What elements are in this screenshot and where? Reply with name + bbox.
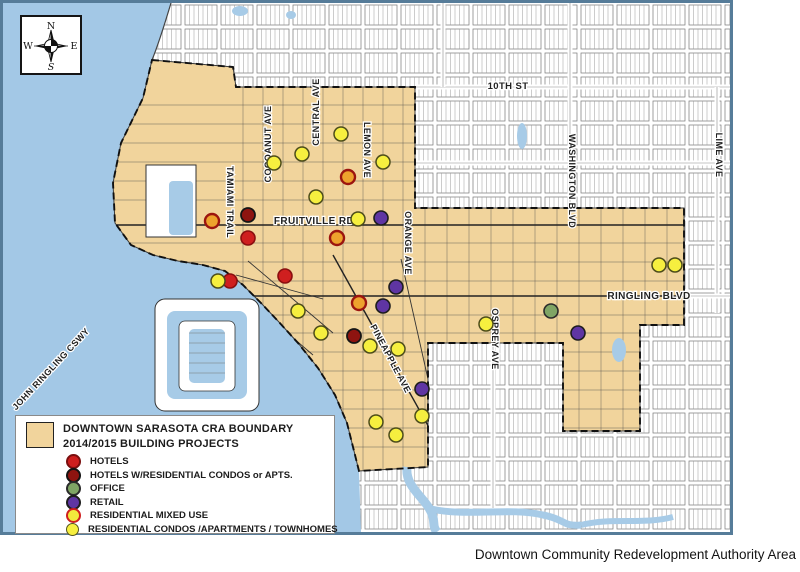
project-marker-hotels xyxy=(278,269,292,283)
project-marker-retail xyxy=(571,326,585,340)
project-marker-residential_condos xyxy=(334,127,348,141)
street-label: 10TH ST xyxy=(488,81,529,92)
project-marker-residential_condos xyxy=(309,190,323,204)
street-label: LEMON AVE xyxy=(362,122,372,178)
sarasota-cra-map: COCOANUT AVECENTRAL AVELEMON AVETAMIAMI … xyxy=(0,0,733,535)
legend-item-retail: RETAIL xyxy=(66,496,334,510)
compass-hub-quarter-1 xyxy=(51,40,58,47)
legend-title-line1: DOWNTOWN SARASOTA CRA BOUNDARY xyxy=(63,422,293,437)
pond xyxy=(232,6,248,16)
legend-item-label: HOTELS W/RESIDENTIAL CONDOS or APTS. xyxy=(90,470,293,481)
project-marker-residential_mixed_use xyxy=(341,170,355,184)
project-marker-residential_condos xyxy=(291,304,305,318)
marina-docks xyxy=(155,299,259,411)
project-marker-residential_condos xyxy=(314,326,328,340)
project-marker-residential_condos xyxy=(369,415,383,429)
street-label: RINGLING BLVD xyxy=(607,291,690,302)
project-marker-residential_condos xyxy=(363,339,377,353)
project-marker-residential_mixed_use xyxy=(352,296,366,310)
project-marker-residential_condos xyxy=(267,156,281,170)
project-marker-residential_condos xyxy=(351,212,365,226)
legend-item-label: RESIDENTIAL CONDOS /APARTMENTS / TOWNHOM… xyxy=(88,524,338,535)
project-marker-hotels xyxy=(241,231,255,245)
street-label: COCOANUT AVE xyxy=(263,106,273,183)
compass-east-label: E xyxy=(71,41,78,52)
project-marker-office xyxy=(544,304,558,318)
legend-titles: DOWNTOWN SARASOTA CRA BOUNDARY 2014/2015… xyxy=(63,422,293,451)
legend-title-line2: 2014/2015 BUILDING PROJECTS xyxy=(63,437,293,452)
map-caption: Downtown Community Redevelopment Authori… xyxy=(475,547,796,562)
project-marker-residential_condos xyxy=(211,274,225,288)
residential-mixed-use-dot-icon xyxy=(66,508,81,523)
project-marker-retail xyxy=(374,211,388,225)
project-marker-residential_condos xyxy=(652,258,666,272)
street-label: FRUITVILLE RD xyxy=(274,216,354,227)
street-label: WASHINGTON BLVD xyxy=(567,134,577,228)
legend-items: HOTELS HOTELS W/RESIDENTIAL CONDOS or AP… xyxy=(16,455,334,536)
pond xyxy=(286,11,296,19)
residential-condos-dot-icon xyxy=(66,523,79,536)
project-marker-residential_condos xyxy=(391,342,405,356)
project-marker-residential_condos xyxy=(376,155,390,169)
street-label: LIME AVE xyxy=(714,133,724,178)
legend-item-label: RETAIL xyxy=(90,497,124,508)
legend-item-hotels: HOTELS xyxy=(66,455,334,469)
legend-item-residential-mixed-use: RESIDENTIAL MIXED USE xyxy=(66,509,334,523)
project-marker-residential_condos xyxy=(295,147,309,161)
street-label: OSPREY AVE xyxy=(490,308,500,369)
legend-item-residential-condos: RESIDENTIAL CONDOS /APARTMENTS / TOWNHOM… xyxy=(66,523,334,537)
street-label: CENTRAL AVE xyxy=(311,78,321,145)
street-label: ORANGE AVE xyxy=(403,211,413,275)
project-marker-hotels_residential xyxy=(347,329,361,343)
project-marker-hotels_residential xyxy=(241,208,255,222)
project-marker-retail xyxy=(415,382,429,396)
project-marker-residential_mixed_use xyxy=(205,214,219,228)
legend-header: DOWNTOWN SARASOTA CRA BOUNDARY 2014/2015… xyxy=(16,416,334,453)
pond xyxy=(517,123,527,149)
project-marker-residential_mixed_use xyxy=(330,231,344,245)
legend-item-label: RESIDENTIAL MIXED USE xyxy=(90,510,208,521)
map-legend: DOWNTOWN SARASOTA CRA BOUNDARY 2014/2015… xyxy=(15,415,335,534)
legend-item-label: HOTELS xyxy=(90,456,129,467)
project-marker-residential_condos xyxy=(668,258,682,272)
legend-item-office: OFFICE xyxy=(66,482,334,496)
compass-south-label: S xyxy=(48,62,55,73)
project-marker-residential_condos xyxy=(415,409,429,423)
project-marker-residential_condos xyxy=(479,317,493,331)
compass-icon: N W E S xyxy=(22,17,80,73)
legend-item-label: OFFICE xyxy=(90,483,125,494)
street-label: TAMIAMI TRAIL xyxy=(225,166,235,238)
legend-item-hotels-residential: HOTELS W/RESIDENTIAL CONDOS or APTS. xyxy=(66,469,334,483)
cra-boundary-swatch-icon xyxy=(26,422,54,448)
project-marker-retail xyxy=(389,280,403,294)
compass-west-label: W xyxy=(23,41,33,52)
pond xyxy=(612,338,626,362)
project-marker-retail xyxy=(376,299,390,313)
compass-hub-quarter-2 xyxy=(45,46,52,53)
project-marker-residential_condos xyxy=(389,428,403,442)
compass-rose: N W E S xyxy=(20,15,82,75)
page: COCOANUT AVECENTRAL AVELEMON AVETAMIAMI … xyxy=(0,0,800,572)
